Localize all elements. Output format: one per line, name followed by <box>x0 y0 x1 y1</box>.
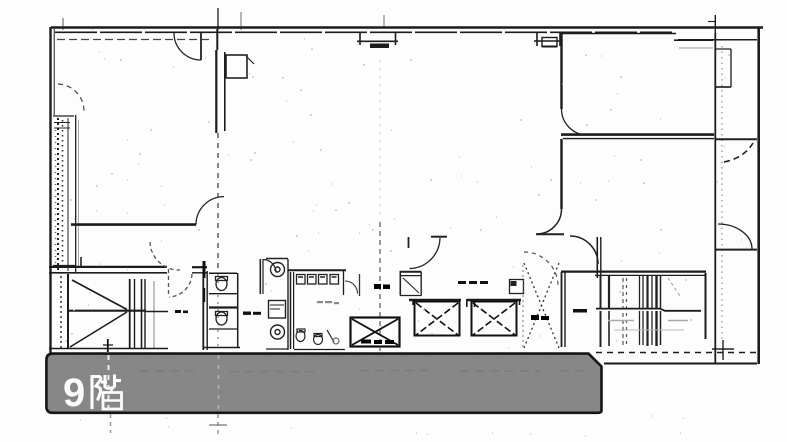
svg-text:9: 9 <box>63 371 85 415</box>
